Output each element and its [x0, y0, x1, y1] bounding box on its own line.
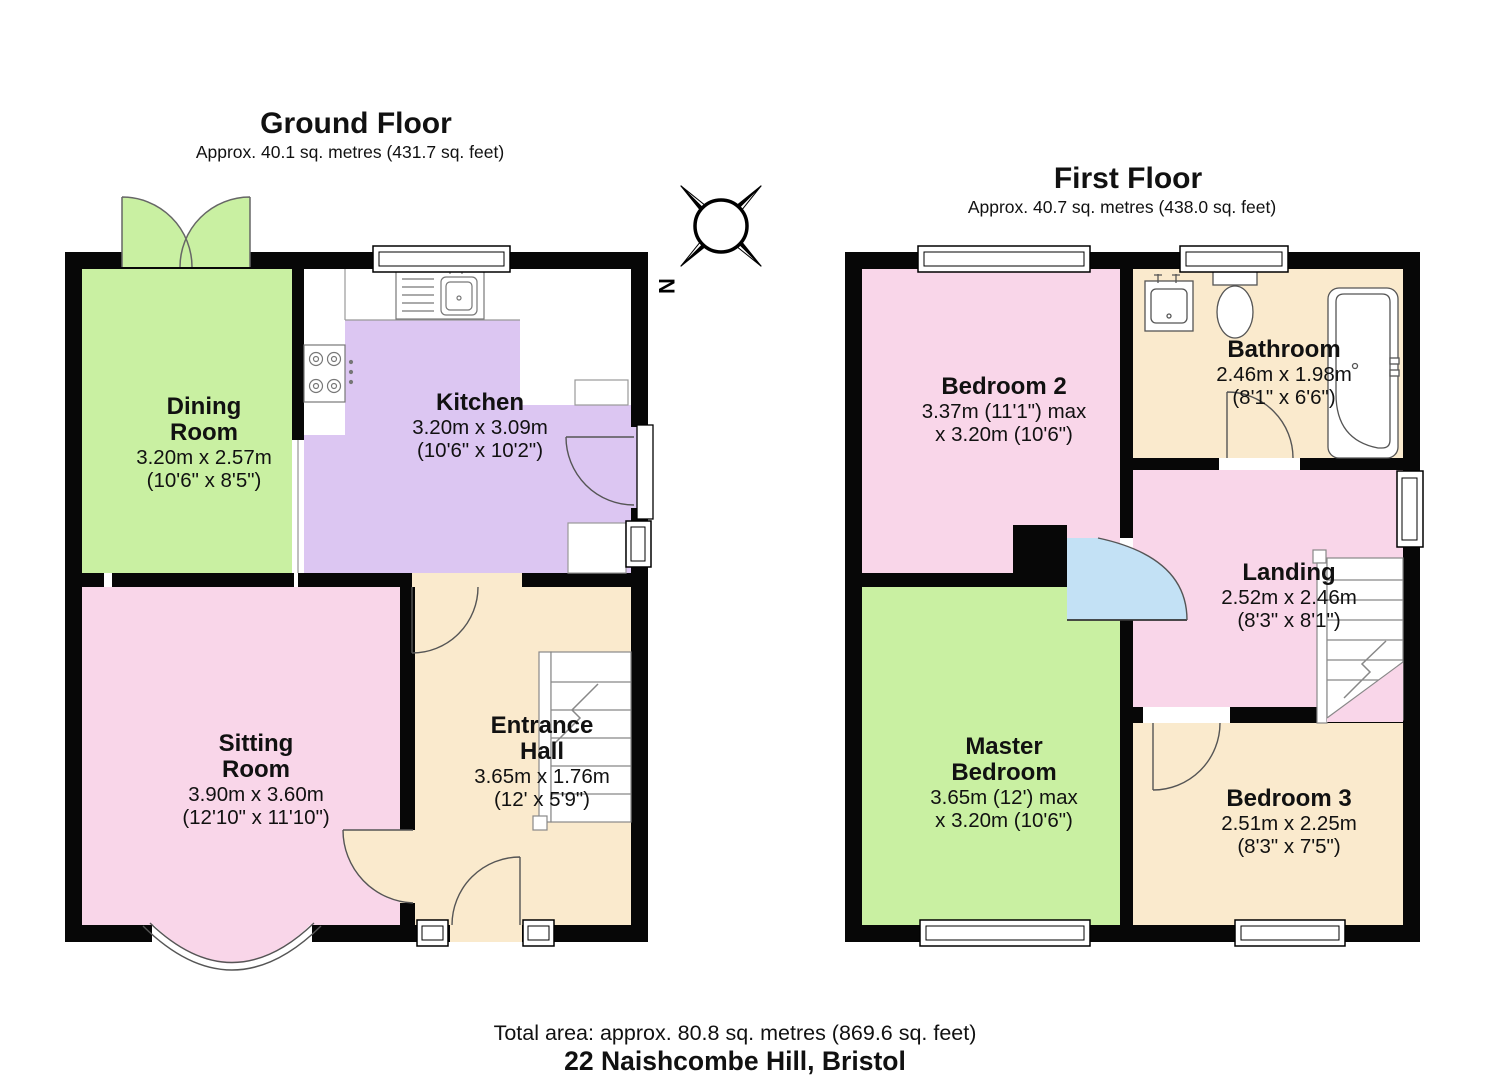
room-label-kitchen: Kitchen 3.20m x 3.09m (10'6" x 10'2")	[412, 390, 548, 463]
ground-floor-subtitle: Approx. 40.1 sq. metres (431.7 sq. feet)	[196, 142, 504, 163]
first-floor-subtitle: Approx. 40.7 sq. metres (438.0 sq. feet)	[968, 197, 1276, 218]
sink	[396, 266, 484, 319]
room-label-entrance: Entrance Hall 3.65m x 1.76m (12' x 5'9")	[472, 713, 612, 812]
room-label-landing: Landing 2.52m x 2.46m (8'3" x 8'1")	[1221, 560, 1357, 633]
ground-floor-title: Ground Floor	[260, 107, 452, 141]
first-floor-title: First Floor	[1054, 162, 1202, 196]
bay-window	[143, 921, 321, 970]
kitchen-doorway	[412, 573, 522, 587]
wash-basin	[1145, 274, 1193, 331]
room-label-master: Master Bedroom 3.65m (12') max x 3.20m (…	[929, 734, 1079, 833]
compass-north-label: N	[654, 278, 679, 294]
total-area-text: Total area: approx. 80.8 sq. metres (869…	[494, 1021, 977, 1046]
hob	[304, 345, 353, 402]
floorplan-canvas: N Ground Floor Approx. 40.1 sq. metres (…	[0, 0, 1485, 1080]
room-label-bedroom2: Bedroom 2 3.37m (11'1") max x 3.20m (10'…	[922, 374, 1087, 447]
room-label-bedroom3: Bedroom 3 2.51m x 2.25m (8'3" x 7'5")	[1221, 786, 1357, 859]
room-label-sitting: Sitting Room 3.90m x 3.60m (12'10" x 11'…	[182, 731, 329, 830]
wall-jamb	[104, 573, 112, 587]
room-label-dining: Dining Room 3.20m x 2.57m (10'6" x 8'5")	[136, 394, 272, 493]
room-label-bathroom: Bathroom 2.46m x 1.98m (8'1" x 6'6")	[1216, 337, 1352, 410]
french-doors	[122, 197, 250, 267]
ground-floor-plan	[65, 197, 653, 970]
compass-north-icon: N	[654, 186, 761, 294]
address-text: 22 Naishcombe Hill, Bristol	[564, 1046, 906, 1077]
